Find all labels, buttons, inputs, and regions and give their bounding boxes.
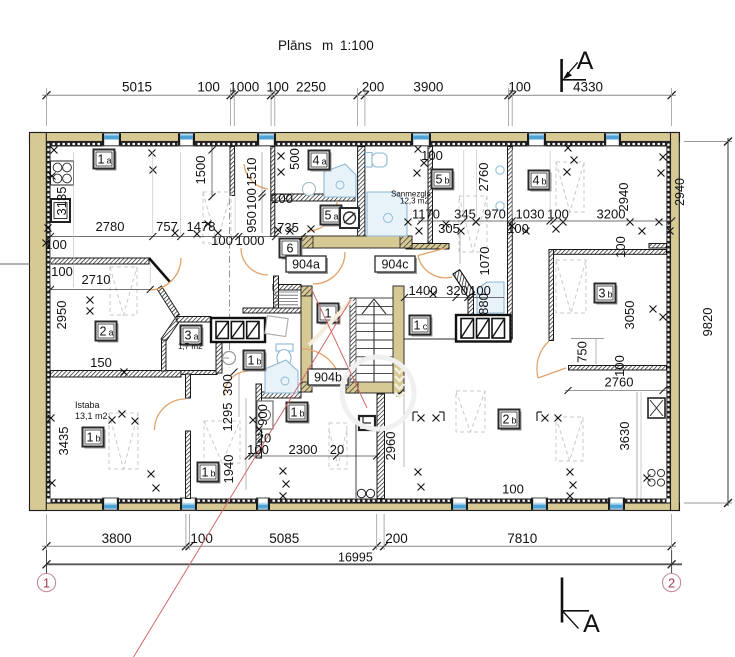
svg-text:100: 100 — [421, 148, 443, 163]
svg-text:2760: 2760 — [476, 163, 491, 192]
svg-text:200: 200 — [362, 80, 385, 95]
svg-text:A: A — [583, 610, 600, 638]
svg-text:1: 1 — [291, 406, 298, 420]
svg-text:9820: 9820 — [700, 308, 715, 337]
svg-text:5: 5 — [325, 209, 332, 223]
svg-text:757: 757 — [156, 219, 178, 234]
svg-text:1: 1 — [202, 466, 209, 480]
svg-text:100: 100 — [51, 264, 73, 279]
svg-text:904c: 904c — [381, 258, 408, 272]
svg-text:735: 735 — [277, 220, 299, 235]
svg-text:1295: 1295 — [220, 403, 235, 432]
svg-text:1940: 1940 — [221, 455, 236, 484]
svg-text:904b: 904b — [314, 371, 342, 385]
svg-text:2250: 2250 — [296, 80, 326, 95]
svg-text:3050: 3050 — [622, 301, 637, 330]
svg-text:b: b — [444, 176, 449, 186]
svg-text:100: 100 — [271, 191, 293, 206]
svg-text:2300: 2300 — [289, 442, 318, 457]
svg-text:2: 2 — [100, 325, 107, 339]
svg-text:150: 150 — [90, 355, 112, 370]
svg-text:100: 100 — [211, 233, 233, 248]
svg-text:1170: 1170 — [412, 207, 440, 222]
svg-text:a: a — [108, 328, 113, 338]
svg-text:A: A — [577, 47, 594, 75]
svg-text:4330: 4330 — [573, 80, 603, 95]
svg-text:100: 100 — [190, 531, 213, 546]
svg-text:950: 950 — [244, 211, 259, 233]
svg-text:100: 100 — [547, 207, 569, 222]
svg-text:m: m — [322, 38, 333, 53]
svg-text:200: 200 — [385, 531, 408, 546]
svg-text:880: 880 — [476, 293, 491, 315]
svg-text:1:100: 1:100 — [340, 38, 374, 53]
svg-text:b: b — [299, 409, 304, 419]
svg-text:2710: 2710 — [82, 272, 111, 287]
svg-text:b: b — [511, 416, 516, 426]
svg-text:1070: 1070 — [477, 247, 492, 276]
svg-text:3630: 3630 — [617, 422, 632, 451]
svg-text:5: 5 — [436, 173, 443, 187]
svg-text:100: 100 — [244, 188, 259, 210]
svg-text:3800: 3800 — [102, 531, 132, 546]
svg-text:3900: 3900 — [413, 80, 443, 95]
svg-text:a: a — [321, 157, 326, 167]
svg-text:100: 100 — [508, 80, 531, 95]
svg-text:1510: 1510 — [244, 158, 259, 187]
svg-text:1500: 1500 — [193, 156, 208, 185]
svg-text:1,7 m2: 1,7 m2 — [178, 342, 203, 351]
svg-text:1: 1 — [43, 575, 50, 590]
svg-text:305: 305 — [438, 221, 460, 236]
svg-text:970: 970 — [484, 207, 506, 222]
svg-text:500: 500 — [287, 148, 302, 170]
svg-text:750: 750 — [575, 341, 590, 363]
svg-text:b: b — [541, 177, 546, 187]
svg-text:904a: 904a — [292, 258, 320, 272]
svg-text:2: 2 — [503, 413, 510, 427]
svg-text:300: 300 — [220, 374, 235, 396]
svg-text:Istaba: Istaba — [75, 400, 100, 410]
svg-text:1030: 1030 — [516, 207, 545, 222]
svg-text:900: 900 — [255, 404, 270, 426]
svg-text:6: 6 — [287, 242, 294, 256]
svg-text:100: 100 — [197, 80, 220, 95]
svg-text:4: 4 — [313, 154, 320, 168]
svg-text:3: 3 — [185, 329, 192, 343]
svg-text:c: c — [423, 322, 428, 332]
svg-text:100: 100 — [266, 80, 289, 95]
svg-text:b: b — [95, 434, 100, 444]
svg-text:5085: 5085 — [269, 531, 299, 546]
svg-text:Plāns: Plāns — [278, 38, 312, 53]
svg-text:1: 1 — [414, 319, 421, 333]
svg-text:4: 4 — [533, 174, 540, 188]
svg-text:2950: 2950 — [54, 301, 69, 330]
svg-text:3135: 3135 — [54, 187, 69, 216]
svg-text:1: 1 — [98, 153, 105, 167]
svg-text:b: b — [607, 290, 612, 300]
svg-text:1: 1 — [87, 431, 94, 445]
svg-text:1000: 1000 — [229, 80, 259, 95]
svg-text:2960: 2960 — [383, 432, 398, 461]
svg-text:7810: 7810 — [507, 531, 537, 546]
svg-text:16995: 16995 — [338, 551, 373, 565]
svg-text:a: a — [106, 156, 111, 166]
svg-text:100: 100 — [613, 236, 628, 258]
svg-text:3435: 3435 — [56, 427, 71, 456]
svg-text:a: a — [193, 332, 198, 342]
svg-text:2: 2 — [668, 575, 675, 590]
svg-text:100: 100 — [612, 355, 627, 377]
svg-text:13,1 m2: 13,1 m2 — [75, 411, 108, 421]
svg-text:3: 3 — [599, 287, 606, 301]
svg-text:2940: 2940 — [673, 178, 687, 206]
svg-text:5015: 5015 — [122, 80, 152, 95]
svg-text:100: 100 — [247, 442, 269, 457]
svg-text:1478: 1478 — [187, 219, 216, 234]
svg-text:2940: 2940 — [616, 183, 631, 212]
svg-text:100: 100 — [502, 482, 524, 497]
svg-text:b: b — [256, 357, 261, 367]
svg-text:b: b — [210, 469, 215, 479]
svg-text:1400: 1400 — [409, 283, 438, 298]
svg-text:a: a — [333, 212, 338, 222]
svg-text:1: 1 — [248, 354, 255, 368]
svg-text:20: 20 — [330, 442, 344, 457]
svg-text:2780: 2780 — [96, 219, 125, 234]
svg-text:12,3 m2: 12,3 m2 — [400, 197, 429, 206]
